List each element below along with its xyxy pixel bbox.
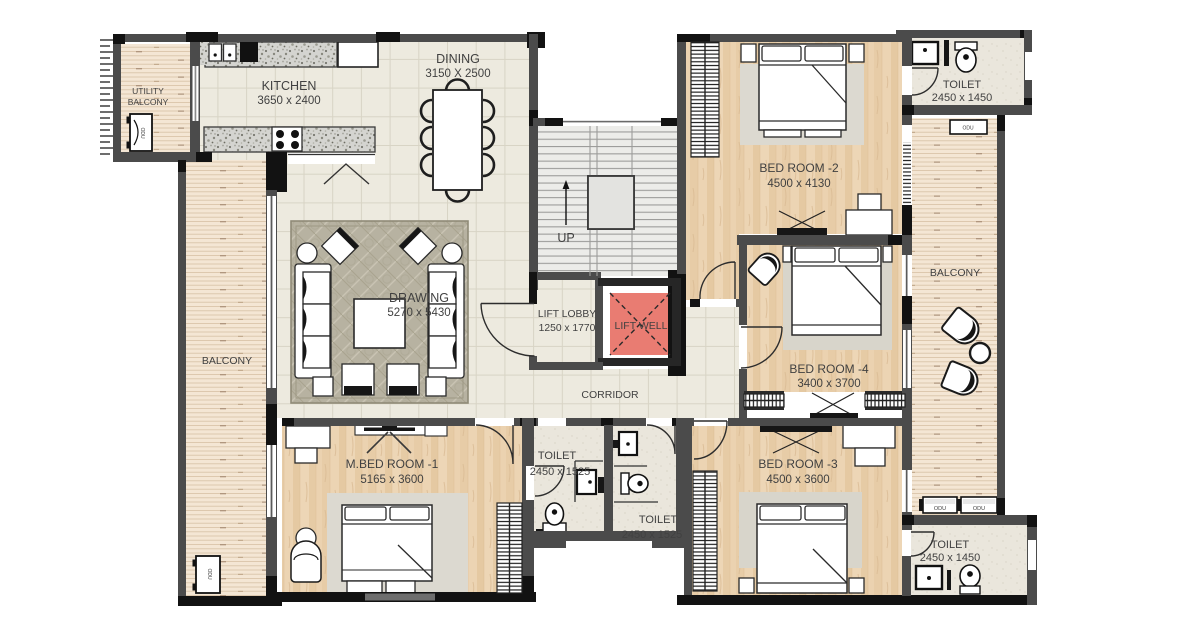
svg-text:UP: UP bbox=[557, 231, 574, 245]
svg-text:3150 X 2500: 3150 X 2500 bbox=[425, 68, 490, 80]
svg-text:BALCONY: BALCONY bbox=[202, 355, 252, 367]
svg-text:LIFT LOBBY: LIFT LOBBY bbox=[538, 309, 596, 320]
svg-text:BED ROOM -3: BED ROOM -3 bbox=[758, 457, 838, 471]
svg-text:CORRIDOR: CORRIDOR bbox=[581, 389, 639, 401]
svg-text:BED ROOM -4: BED ROOM -4 bbox=[789, 362, 869, 376]
svg-text:ODU: ODU bbox=[206, 568, 212, 580]
svg-text:ODU: ODU bbox=[973, 506, 985, 512]
svg-text:5270 x 5430: 5270 x 5430 bbox=[387, 307, 450, 319]
svg-text:DINING: DINING bbox=[436, 52, 480, 66]
svg-text:TOILET: TOILET bbox=[931, 539, 970, 551]
svg-text:TOILET: TOILET bbox=[639, 514, 678, 526]
svg-text:2450 x 1525: 2450 x 1525 bbox=[530, 466, 591, 478]
svg-text:3650 x 2400: 3650 x 2400 bbox=[257, 95, 320, 107]
svg-text:TOILET: TOILET bbox=[943, 79, 982, 91]
svg-text:DRAWING: DRAWING bbox=[389, 291, 449, 305]
svg-text:1250 x 1770: 1250 x 1770 bbox=[539, 323, 596, 334]
svg-text:4500 x 3600: 4500 x 3600 bbox=[766, 474, 829, 486]
svg-text:3400 x 3700: 3400 x 3700 bbox=[797, 378, 860, 390]
svg-text:2450 x 1525: 2450 x 1525 bbox=[622, 529, 683, 541]
svg-text:M.BED ROOM -1: M.BED ROOM -1 bbox=[346, 457, 439, 471]
svg-text:ODU: ODU bbox=[139, 127, 145, 139]
svg-text:LIFT WELL: LIFT WELL bbox=[615, 320, 668, 332]
svg-text:BALCONY: BALCONY bbox=[930, 267, 980, 279]
svg-text:ODU: ODU bbox=[962, 126, 974, 132]
svg-text:UTILITY: UTILITY bbox=[132, 86, 164, 96]
svg-text:ODU: ODU bbox=[934, 506, 946, 512]
svg-text:KITCHEN: KITCHEN bbox=[262, 79, 317, 93]
svg-text:TOILET: TOILET bbox=[538, 450, 577, 462]
svg-text:BALCONY: BALCONY bbox=[128, 97, 169, 107]
svg-text:BED ROOM -2: BED ROOM -2 bbox=[759, 161, 839, 175]
svg-text:2450 x 1450: 2450 x 1450 bbox=[920, 552, 981, 564]
svg-text:2450 x 1450: 2450 x 1450 bbox=[932, 92, 993, 104]
svg-text:4500 x 4130: 4500 x 4130 bbox=[767, 178, 830, 190]
svg-text:5165 x 3600: 5165 x 3600 bbox=[360, 474, 423, 486]
